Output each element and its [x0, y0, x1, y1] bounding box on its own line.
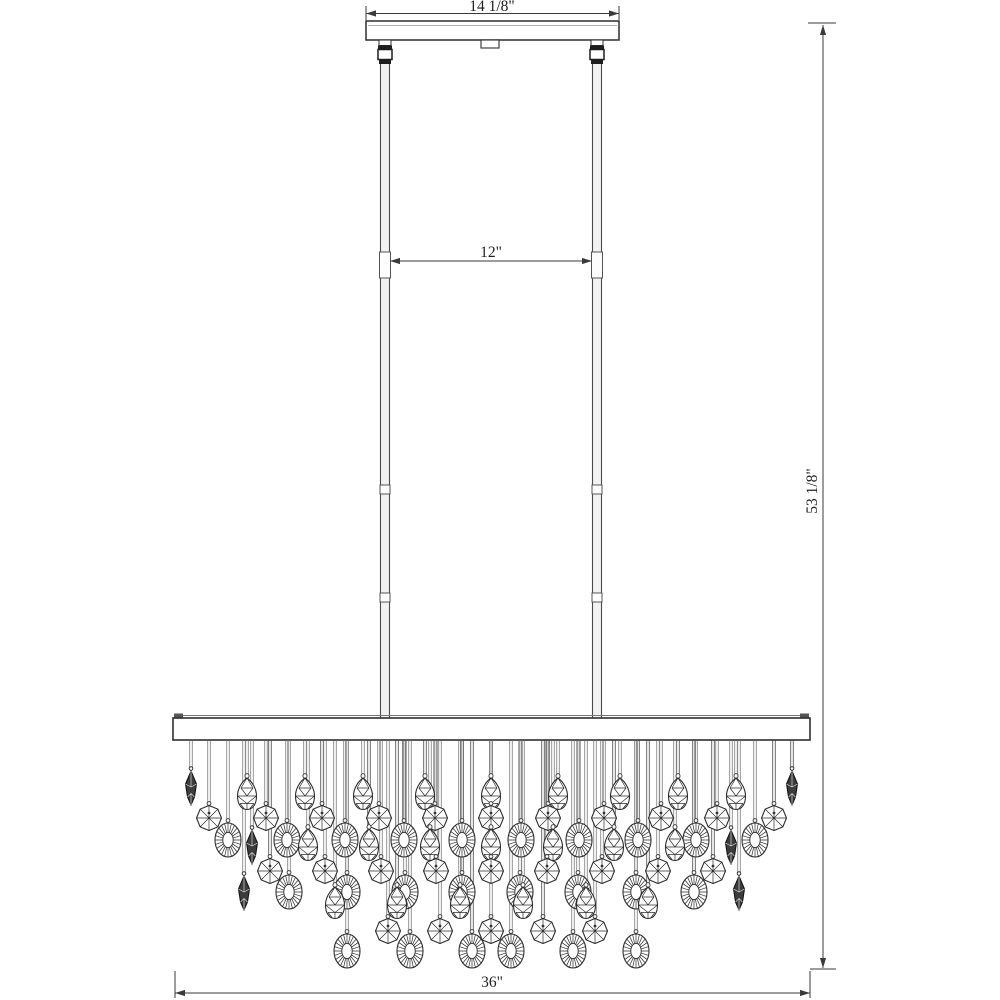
crystal-field [186, 741, 798, 969]
overall-height-label: 53 1/8" [804, 468, 821, 514]
crystal-prism [787, 767, 798, 805]
rod-joint [380, 593, 390, 602]
arrow-up-icon [820, 25, 826, 35]
crystal-octagon [428, 915, 453, 944]
wire [227, 741, 230, 823]
crystal-oval [334, 930, 360, 968]
frame-end-cap [800, 714, 809, 718]
crystal-prism [186, 767, 197, 805]
wire [269, 741, 272, 859]
wire [380, 741, 383, 859]
wire [265, 741, 268, 806]
crystal-oval [274, 819, 300, 857]
arrow-right-icon [609, 10, 619, 16]
arrow-left-icon [390, 258, 400, 264]
crystal-prism [239, 872, 250, 910]
wire [522, 741, 525, 886]
wire [557, 741, 560, 777]
wire [362, 741, 365, 777]
crystal-octagon [197, 802, 222, 831]
wire [324, 741, 327, 859]
wire [396, 741, 399, 886]
mount-tab [481, 40, 499, 48]
wire [657, 741, 660, 859]
arrow-right-icon [582, 258, 592, 264]
canopy-width-label: 14 1/8" [469, 0, 515, 15]
wire [424, 741, 427, 777]
crystal-oval [391, 819, 417, 857]
wire [735, 741, 738, 777]
arrow-right-icon [800, 990, 810, 996]
crystal-octagon [310, 802, 335, 831]
crystal-octagon [479, 915, 504, 944]
crystal-prism [734, 872, 745, 910]
rod-joint [592, 593, 602, 602]
crystal-teardrop [296, 774, 315, 810]
wire [246, 741, 249, 777]
crystal-teardrop [354, 774, 373, 810]
crystal-oval [560, 930, 586, 968]
wire [619, 741, 622, 777]
crystal-teardrop [360, 825, 379, 861]
crystal-octagon [649, 802, 674, 831]
left-hang-rod [378, 40, 392, 718]
collar-band [379, 60, 391, 65]
wire [677, 741, 680, 777]
crystal-teardrop [299, 825, 318, 861]
fixture-frame [173, 714, 810, 741]
crystal-octagon [479, 855, 504, 884]
arrow-left-icon [366, 10, 376, 16]
arrow-down-icon [820, 958, 826, 968]
right-hang-rod [590, 40, 604, 718]
wire [791, 741, 794, 771]
crystal-octagon [254, 802, 279, 831]
crystal-oval [397, 930, 423, 968]
wire [190, 741, 193, 771]
wire [387, 741, 390, 919]
crystal-oval [683, 819, 709, 857]
rod-joint [380, 485, 390, 494]
crystal-oval [623, 930, 649, 968]
fixture-width-label: 36" [481, 974, 503, 991]
rod-spacing-label: 12" [480, 244, 502, 261]
collar-band [591, 60, 603, 65]
chandelier-dimension-diagram: 14 1/8" 12" [0, 0, 1000, 1000]
drawing-canvas: 14 1/8" 12" [0, 0, 1000, 1000]
crystal-teardrop [605, 825, 624, 861]
wire [594, 741, 597, 919]
wire [585, 741, 588, 886]
crystal-octagon [258, 855, 283, 884]
frame-end-cap [174, 714, 183, 718]
wire [459, 741, 462, 886]
wire [321, 741, 324, 806]
crystal-prism [726, 826, 737, 864]
rod-joint [592, 485, 602, 494]
crystal-prism [247, 826, 258, 864]
wire [601, 741, 604, 859]
rod-joint [380, 252, 391, 278]
crystal-octagon [762, 802, 787, 831]
crystal-octagon [701, 855, 726, 884]
rod-joint [592, 252, 603, 278]
crystal-teardrop [666, 825, 685, 861]
wire [304, 741, 307, 777]
wire [712, 741, 715, 859]
arrow-left-icon [175, 990, 185, 996]
wire [716, 741, 719, 806]
wire [660, 741, 663, 806]
wire [208, 741, 211, 806]
crystal-teardrop [669, 774, 688, 810]
crystal-octagon [705, 802, 730, 831]
wire [773, 741, 776, 806]
wire [754, 741, 757, 823]
crystal-oval [566, 819, 592, 857]
canopy-plate [366, 21, 619, 48]
crystal-teardrop [611, 774, 630, 810]
crystal-octagon [531, 915, 556, 944]
